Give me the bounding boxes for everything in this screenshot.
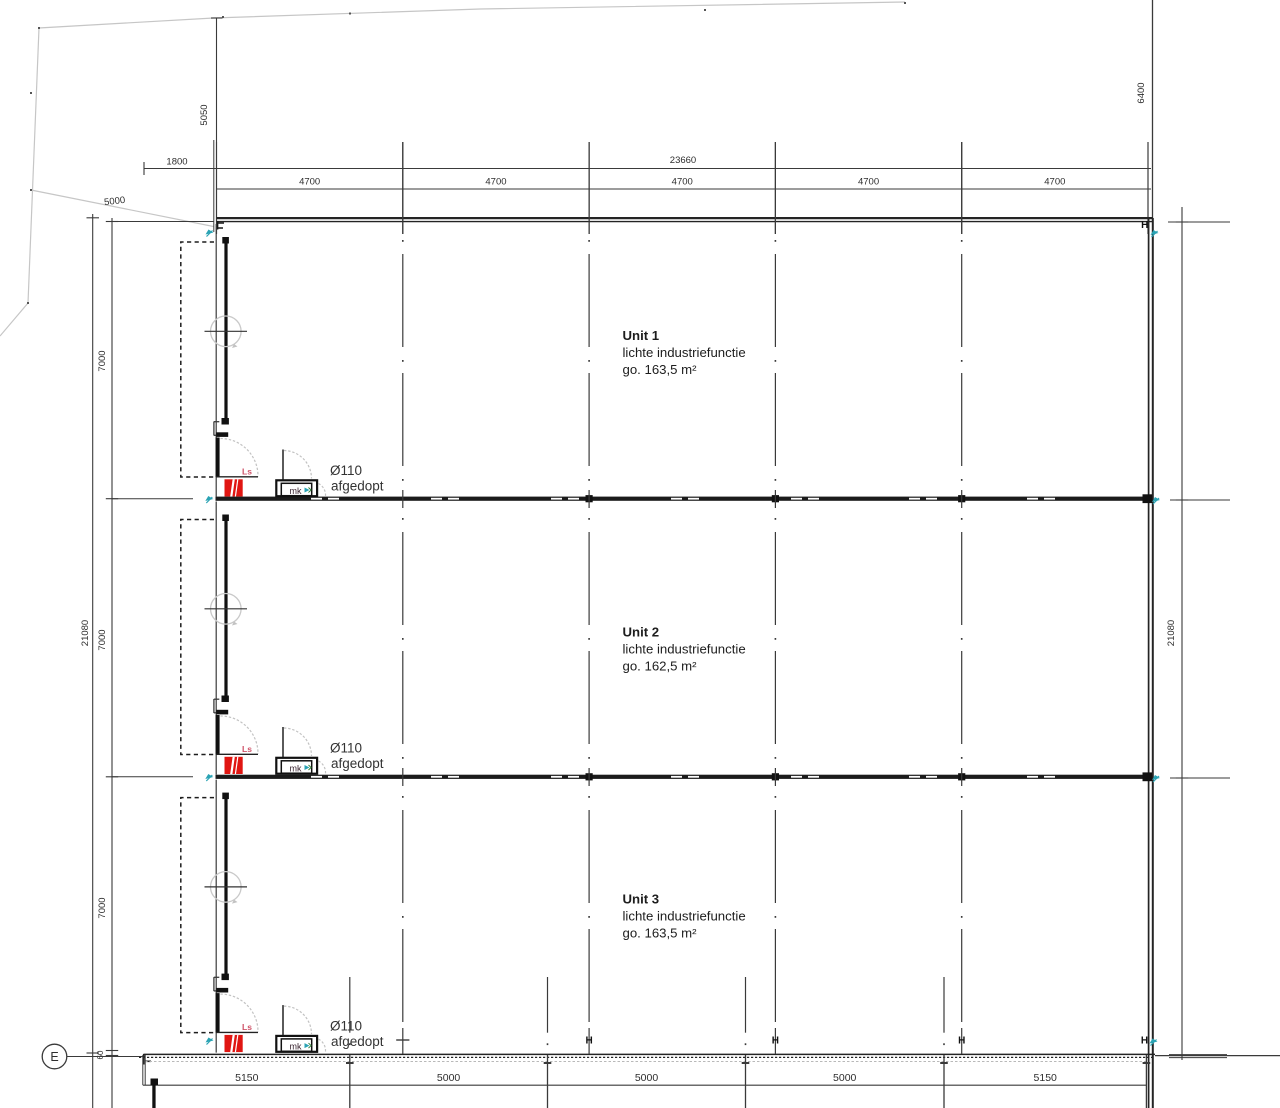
svg-text:5150: 5150 <box>1034 1072 1058 1084</box>
svg-text:6400: 6400 <box>1136 82 1147 103</box>
svg-text:23660: 23660 <box>670 155 696 166</box>
svg-text:lichte industriefunctie: lichte industriefunctie <box>623 642 746 657</box>
svg-text:7000: 7000 <box>97 350 108 371</box>
svg-text:Ls: Ls <box>242 744 252 754</box>
svg-text:5000: 5000 <box>437 1072 461 1084</box>
svg-text:5150: 5150 <box>235 1072 259 1084</box>
svg-text:7000: 7000 <box>97 629 108 650</box>
svg-text:H: H <box>772 1036 779 1047</box>
svg-text:Ls: Ls <box>242 467 252 477</box>
svg-text:Ø110: Ø110 <box>330 1018 362 1033</box>
svg-text:Ø110: Ø110 <box>330 463 362 478</box>
svg-text:Unit 3: Unit 3 <box>623 892 660 907</box>
svg-text:21080: 21080 <box>80 620 91 646</box>
svg-text:4700: 4700 <box>672 177 693 188</box>
svg-text:4700: 4700 <box>858 177 879 188</box>
svg-text:4700: 4700 <box>485 177 506 188</box>
svg-text:Unit 1: Unit 1 <box>623 328 660 343</box>
svg-text:H: H <box>1141 220 1148 231</box>
svg-text:Ls: Ls <box>242 1022 252 1032</box>
svg-text:Unit 2: Unit 2 <box>623 625 660 640</box>
svg-text:go. 162,5 m²: go. 162,5 m² <box>623 659 698 674</box>
svg-text:go. 163,5 m²: go. 163,5 m² <box>623 926 698 941</box>
svg-text:60: 60 <box>96 1050 105 1059</box>
svg-text:H: H <box>958 1036 965 1047</box>
svg-text:go. 163,5 m²: go. 163,5 m² <box>623 362 698 377</box>
svg-text:afgedopt: afgedopt <box>331 756 384 771</box>
svg-text:5000: 5000 <box>635 1072 659 1084</box>
svg-text:7000: 7000 <box>97 897 108 918</box>
svg-text:H: H <box>585 1036 592 1047</box>
svg-text:4700: 4700 <box>1044 177 1065 188</box>
svg-text:mk: mk <box>290 486 302 496</box>
svg-text:H: H <box>1141 1036 1148 1047</box>
svg-text:5050: 5050 <box>199 104 210 125</box>
svg-text:1800: 1800 <box>166 157 187 168</box>
svg-text:lichte industriefunctie: lichte industriefunctie <box>623 345 746 360</box>
svg-text:afgedopt: afgedopt <box>331 478 384 493</box>
svg-text:E: E <box>50 1050 58 1064</box>
svg-text:4700: 4700 <box>299 177 320 188</box>
svg-text:5000: 5000 <box>833 1072 857 1084</box>
svg-text:mk: mk <box>290 1041 302 1051</box>
svg-text:afgedopt: afgedopt <box>331 1034 384 1049</box>
svg-text:21080: 21080 <box>1166 620 1177 646</box>
svg-text:lichte industriefunctie: lichte industriefunctie <box>623 909 746 924</box>
svg-text:Ø110: Ø110 <box>330 740 362 755</box>
svg-text:mk: mk <box>290 763 302 773</box>
